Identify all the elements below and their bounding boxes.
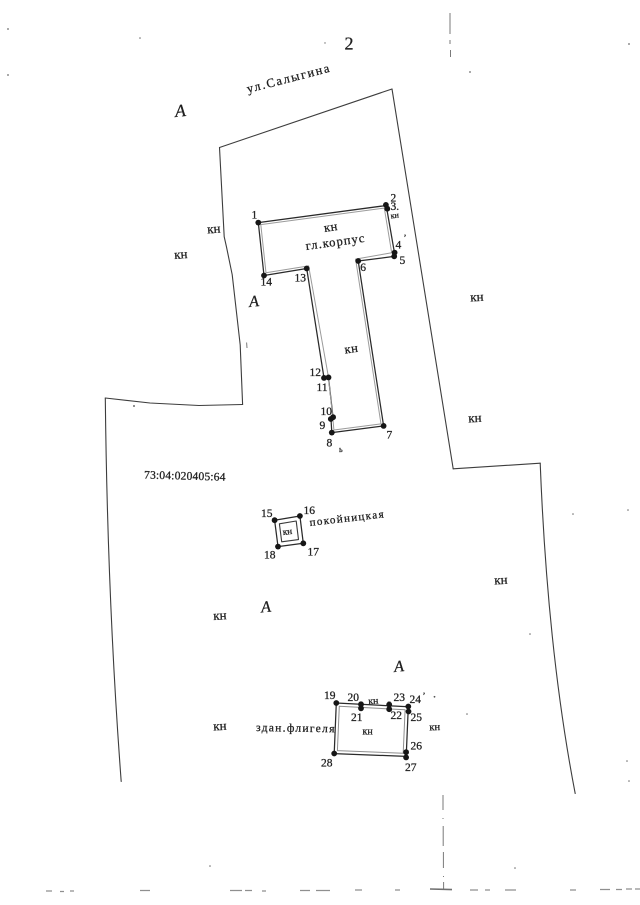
svg-text:20: 20 [348, 692, 360, 704]
svg-text:22: 22 [391, 710, 403, 722]
svg-text:3.: 3. [391, 201, 400, 213]
svg-text:кн: кн [363, 727, 374, 738]
svg-text:16: 16 [304, 505, 316, 517]
svg-text:ь: ь [339, 445, 343, 454]
svg-text:19: 19 [324, 690, 336, 702]
svg-text:кн: кн [344, 341, 360, 357]
svg-text:кн: кн [207, 221, 221, 237]
svg-text:кн: кн [468, 410, 482, 426]
svg-text:9: 9 [320, 420, 326, 432]
svg-text:кн: кн [282, 526, 293, 537]
svg-text:кн: кн [174, 246, 188, 262]
svg-text:21: 21 [351, 712, 363, 724]
svg-text:кн: кн [494, 572, 508, 588]
svg-text:14: 14 [261, 277, 273, 289]
svg-text:5: 5 [400, 255, 406, 267]
svg-text:А: А [392, 658, 405, 676]
svg-text:17: 17 [308, 547, 320, 559]
svg-text:24: 24 [410, 694, 422, 706]
svg-text:2: 2 [345, 34, 354, 54]
svg-text:кн: кн [213, 607, 227, 623]
svg-text:7: 7 [387, 430, 393, 442]
svg-text:А: А [259, 599, 272, 617]
svg-text:6: 6 [360, 262, 366, 274]
svg-text:кн: кн [368, 695, 380, 707]
svg-text:’: ’ [404, 233, 407, 243]
svg-text:кн: кн [429, 722, 441, 734]
svg-text:8: 8 [327, 438, 333, 450]
svg-text:23: 23 [394, 692, 406, 704]
svg-text:11: 11 [317, 382, 328, 394]
svg-text:1: 1 [252, 210, 258, 222]
svg-text:здан.флигеля: здан.флигеля [256, 722, 336, 735]
svg-text:28: 28 [321, 758, 333, 770]
svg-text:26: 26 [411, 741, 423, 753]
svg-text:13: 13 [295, 273, 307, 285]
svg-text:12: 12 [310, 367, 322, 379]
svg-text:25: 25 [411, 712, 423, 724]
svg-text:15: 15 [261, 508, 273, 520]
svg-text:кн: кн [213, 718, 227, 734]
svg-text:А: А [247, 293, 260, 311]
svg-text:А: А [173, 100, 187, 121]
svg-text:4: 4 [396, 240, 402, 252]
svg-text:27: 27 [405, 762, 417, 774]
svg-text:’: ’ [423, 691, 426, 701]
svg-text:73:04:020405:64: 73:04:020405:64 [144, 470, 226, 484]
svg-text:кн: кн [470, 289, 484, 305]
svg-text:10: 10 [321, 406, 333, 418]
svg-text:кн: кн [323, 219, 339, 235]
svg-text:18: 18 [264, 550, 276, 562]
